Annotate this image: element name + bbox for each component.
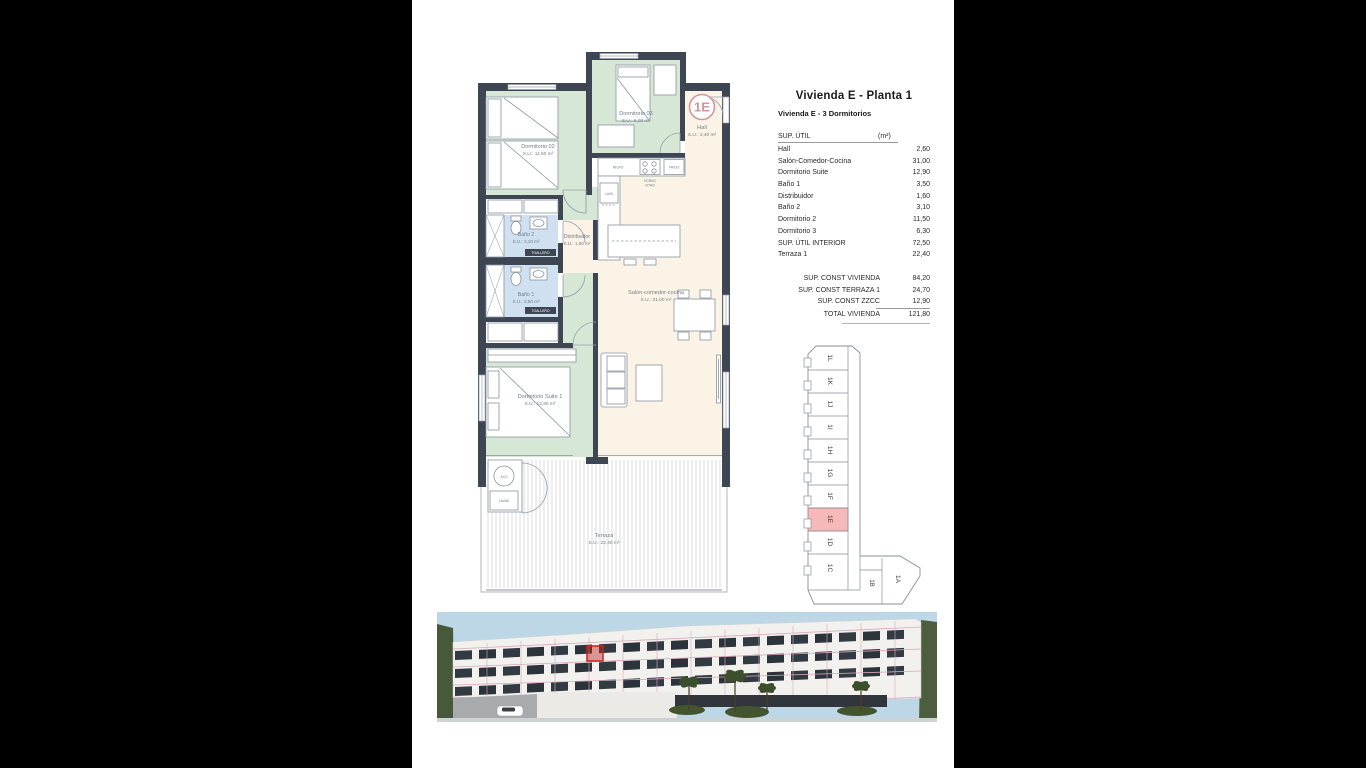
horno-label-2: VITRO: [645, 184, 655, 188]
keyplan-unit-1b: 1B: [868, 579, 874, 586]
garage-band: [675, 695, 887, 707]
room-label-hall: Hall: [697, 125, 707, 131]
area-table: SUP. ÚTIL (m²) Hall2,60 Salón-Comedor-Co…: [778, 131, 930, 324]
acs-label: ACS: [501, 475, 509, 479]
micro-label: MICRO: [613, 166, 624, 170]
keyplan-unit-1d: 1D: [826, 538, 833, 547]
keyplan-unit-1e: 1E: [826, 515, 833, 524]
keyplan-unit-1a: 1A: [894, 575, 901, 584]
keyplan-outline: [808, 346, 920, 604]
table-row-total: SUP. CONST ZZCC12,90: [778, 296, 930, 308]
table-row: Salón-Comedor-Cocina31,00: [778, 156, 930, 168]
floorplan-drawing: TOALLERO TOALLERO 1E Dormitorio 02 S.U.:…: [478, 45, 734, 600]
keyplan-unit-1h: 1H: [826, 446, 833, 455]
plan-sheet: TOALLERO TOALLERO 1E Dormitorio 02 S.U.:…: [412, 0, 954, 768]
driveway: [453, 694, 537, 720]
area-table-header: SUP. ÚTIL (m²): [778, 131, 930, 143]
room-distribuidor: [563, 220, 598, 273]
room-label-terraza: Terraza: [595, 533, 615, 539]
table-row: Terraza 122,40: [778, 249, 930, 261]
keyplan-unit-1c: 1C: [826, 564, 833, 573]
room-area-suite: S.U.: 12,90 m²: [525, 401, 556, 407]
page-title: Vivienda E - Planta 1: [778, 90, 930, 102]
keyplan-unit-1j: 1J: [826, 401, 833, 408]
keyplan-unit-1f: 1F: [826, 492, 833, 500]
table-row: Dormitorio 36,30: [778, 226, 930, 238]
room-area-bano2: S.U.: 3,10 m²: [512, 239, 540, 244]
building-render: [437, 612, 937, 722]
table-row: Baño 13,50: [778, 179, 930, 191]
keyplan-unit-1i: 1I: [826, 424, 833, 430]
unit-badge: 1E: [690, 95, 715, 120]
sofa-icon: [601, 353, 627, 407]
room-label-suite: Dormitorio Suite 1: [518, 394, 563, 400]
room-area-dormitorio02: S.U.: 11,50 m²: [523, 151, 554, 157]
podium-wall: [537, 692, 677, 719]
room-area-bano1: S.U.: 3,50 m²: [512, 299, 540, 304]
highlighted-unit-marker: [587, 646, 603, 661]
room-area-distribuidor: S.U.: 1,60 m²: [563, 241, 591, 246]
totals-block: SUP. CONST VIVIENDA84,20 SUP. CONST TERR…: [778, 273, 930, 324]
lavad-label: LAVAD: [499, 499, 510, 503]
table-row: Baño 23,10: [778, 202, 930, 214]
trees-left: [437, 624, 455, 722]
tv-icon: [717, 355, 721, 403]
table-row: Distribuidor1,60: [778, 191, 930, 203]
table-row: Dormitorio Suite12,90: [778, 167, 930, 179]
keyplan-unit-1k: 1K: [826, 377, 833, 386]
room-label-dormitorio02: Dormitorio 02: [521, 144, 555, 150]
road: [437, 718, 937, 722]
room-label-distribuidor: Distribuidor: [564, 234, 591, 240]
car: [497, 706, 523, 716]
room-label-salon: Salón-comedor-cocina: [628, 290, 685, 296]
table-header-unit: (m²): [878, 131, 891, 143]
table-row: SUP. ÚTIL INTERIOR72,50: [778, 238, 930, 250]
coffee-table-icon: [636, 365, 662, 401]
total-underline: [842, 323, 930, 324]
room-area-terraza: S.U.: 22,40 m²: [589, 540, 620, 546]
table-row-grand-total: TOTAL VIVIENDA121,80: [778, 309, 930, 321]
page-subtitle: Vivienda E - 3 Dormitorios: [778, 109, 930, 118]
toallero-label: TOALLERO: [531, 309, 549, 313]
room-area-dormitorio03: S.U.: 6,00 m²: [622, 118, 651, 124]
keyplan-drawing: 1L 1K 1J 1I 1H 1G 1F 1E 1D 1C 1B 1A: [802, 338, 932, 610]
table-header-label: SUP. ÚTIL: [778, 133, 811, 140]
toallero-label: TOALLERO: [531, 251, 549, 255]
room-label-bano2: Baño 2: [518, 232, 535, 238]
lava-label: LAVA: [605, 192, 614, 196]
utility-closet: [488, 460, 522, 512]
trees-right: [919, 620, 937, 722]
frigo-label: FRIGO: [669, 166, 680, 170]
unit-badge-label: 1E: [694, 100, 710, 115]
keyplan-unit-1l: 1L: [826, 354, 833, 362]
info-panel: Vivienda E - Planta 1 Vivienda E - 3 Dor…: [778, 90, 930, 324]
table-row-total: SUP. CONST TERRAZA 124,70: [778, 285, 930, 297]
keyplan-unit-1g: 1G: [826, 469, 833, 478]
room-label-dormitorio03: Dormitorio 03: [619, 111, 653, 117]
room-area-hall: S.U.: 2,40 m²: [688, 132, 717, 138]
bed-icon: [486, 97, 558, 189]
table-row-total: SUP. CONST VIVIENDA84,20: [778, 273, 930, 285]
table-row: Dormitorio 211,50: [778, 214, 930, 226]
horno-label-1: HORNO: [644, 179, 656, 183]
table-row: Hall2,60: [778, 144, 930, 156]
room-label-bano1: Baño 1: [518, 292, 535, 298]
room-area-salon: S.U.: 31,00 m²: [641, 297, 672, 303]
